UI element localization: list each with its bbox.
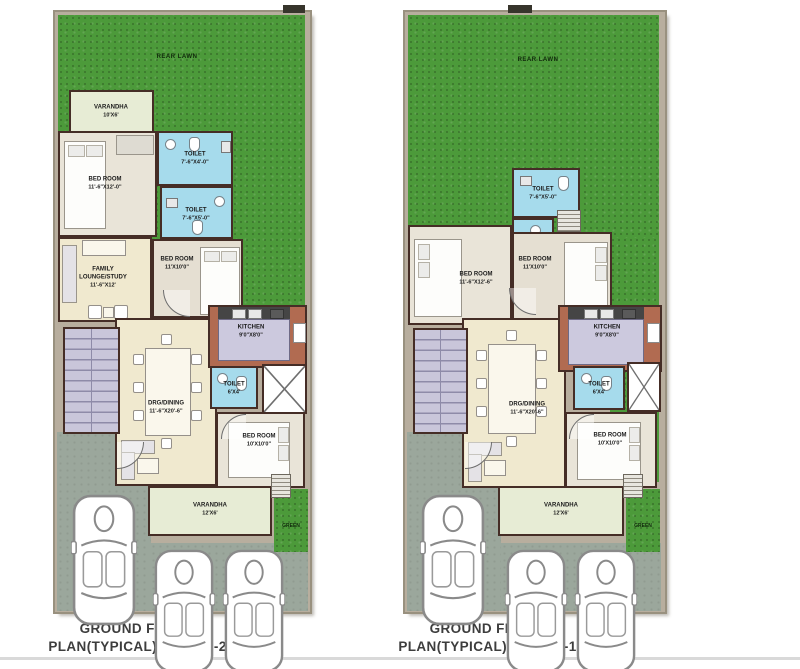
car-icon (223, 547, 285, 669)
green-patch (274, 489, 308, 552)
window (166, 198, 178, 208)
chair (476, 378, 487, 389)
car-icon (420, 490, 486, 630)
chair (191, 382, 202, 393)
chair (133, 382, 144, 393)
rear-lawn-label: REAR LAWN (518, 57, 559, 63)
stove (270, 309, 284, 319)
plan-phase-1: REAR LAWN (405, 12, 665, 612)
dining-table (145, 348, 191, 436)
kitchen-counter (568, 307, 644, 319)
green-patch (626, 489, 660, 552)
shaft-x-icon (629, 364, 659, 410)
toilet-icon (558, 176, 569, 191)
car-icon (153, 547, 215, 669)
room-label-varandha-bottom: VARANDHA12'X6' (193, 503, 227, 518)
shaft-x-icon (264, 366, 305, 412)
room-label-bed-bottom: BED ROOM10'X10'0" (594, 433, 627, 448)
floor-plan-sheet: REAR LAWN (0, 0, 800, 669)
pillow (68, 145, 85, 157)
chair (476, 406, 487, 417)
car-icon (71, 490, 137, 630)
chair (88, 305, 102, 319)
room-label-bed-top: BED ROOM11'-6"X12'-0" (88, 177, 121, 192)
pillow (595, 265, 607, 281)
shaft (627, 362, 661, 412)
green-label: GREEN (634, 523, 652, 529)
sink (584, 309, 598, 319)
room-label-toilet-small: TOILET6'X4' (588, 382, 609, 397)
pillow (418, 244, 430, 260)
car-icon (575, 547, 637, 669)
pillow (629, 427, 640, 443)
staircase (63, 327, 120, 434)
room-label-kitchen: KITCHEN9'0"X8'0" (594, 325, 621, 340)
room-label-toilet-2: TOILET7'-6"X5'-0" (182, 208, 209, 223)
room-label-kitchen: KITCHEN9'0"X8'0" (238, 325, 265, 340)
pillow (86, 145, 103, 157)
pillow (595, 247, 607, 263)
room-label-bed-mid: BED ROOM11'X10'0" (161, 257, 194, 272)
fridge (647, 323, 660, 343)
pillow (278, 445, 289, 461)
chair (191, 410, 202, 421)
toilet-icon (189, 137, 200, 152)
pillow (629, 445, 640, 461)
chair (536, 378, 547, 389)
steps (557, 210, 581, 232)
green-label: GREEN (282, 523, 300, 529)
rug (137, 458, 159, 474)
room-label-toilet-3: TOILET6'X4' (223, 382, 244, 397)
top-vent (283, 5, 305, 13)
rear-lawn-label: REAR LAWN (157, 54, 198, 60)
chair (133, 354, 144, 365)
room-label-drg: DRG/DINING11'-6"X20'-6" (509, 402, 545, 417)
chair (536, 350, 547, 361)
chair (114, 305, 128, 319)
side-table (103, 307, 114, 318)
room-label-varandha: VARANDHA12'X6' (544, 503, 578, 518)
room-label-drg: DRG/DINING11'-6"X20'-6" (148, 401, 184, 416)
plan-phase-2: REAR LAWN (55, 12, 310, 612)
basin-icon (214, 196, 225, 207)
kitchen-counter (218, 307, 290, 319)
sink (248, 309, 262, 319)
staircase (413, 328, 468, 434)
chair (506, 330, 517, 341)
study-desk (82, 240, 126, 256)
room-label-toilet-1: TOILET7'-6"X4'-0" (181, 152, 208, 167)
dining-table (488, 344, 536, 434)
pillow (204, 251, 220, 262)
sink (600, 309, 614, 319)
room-label-bed-left: BED ROOM11'-6"X12'-6" (459, 272, 492, 287)
room-label-family: FAMILY LOUNGE/STUDY11'-6"X12' (74, 267, 132, 290)
chair (506, 436, 517, 447)
chair (191, 354, 202, 365)
wardrobe (116, 135, 154, 155)
room-label-toilet-top: TOILET7'-6"X5'-0" (529, 187, 556, 202)
shaft (262, 364, 307, 414)
chair (476, 350, 487, 361)
chair (161, 334, 172, 345)
basin-icon (165, 139, 176, 150)
bottom-divider (0, 657, 800, 660)
top-vent (508, 5, 532, 13)
chair (133, 410, 144, 421)
stove (622, 309, 636, 319)
rug (484, 460, 506, 476)
entry-steps (623, 474, 643, 498)
entry-steps (271, 474, 291, 498)
fridge (293, 323, 306, 343)
pillow (221, 251, 237, 262)
window (520, 176, 532, 186)
pillow (418, 262, 430, 278)
room-label-varandha-top: VARANDHA10'X6' (94, 105, 128, 120)
car-icon (505, 547, 567, 669)
sink (232, 309, 246, 319)
chair (161, 438, 172, 449)
window (221, 141, 231, 153)
room-label-bed-mid: BED ROOM11'X10'0" (519, 257, 552, 272)
pillow (278, 427, 289, 443)
bed (414, 239, 462, 317)
room-label-bed-bottom: BED ROOM10'X10'0" (243, 434, 276, 449)
